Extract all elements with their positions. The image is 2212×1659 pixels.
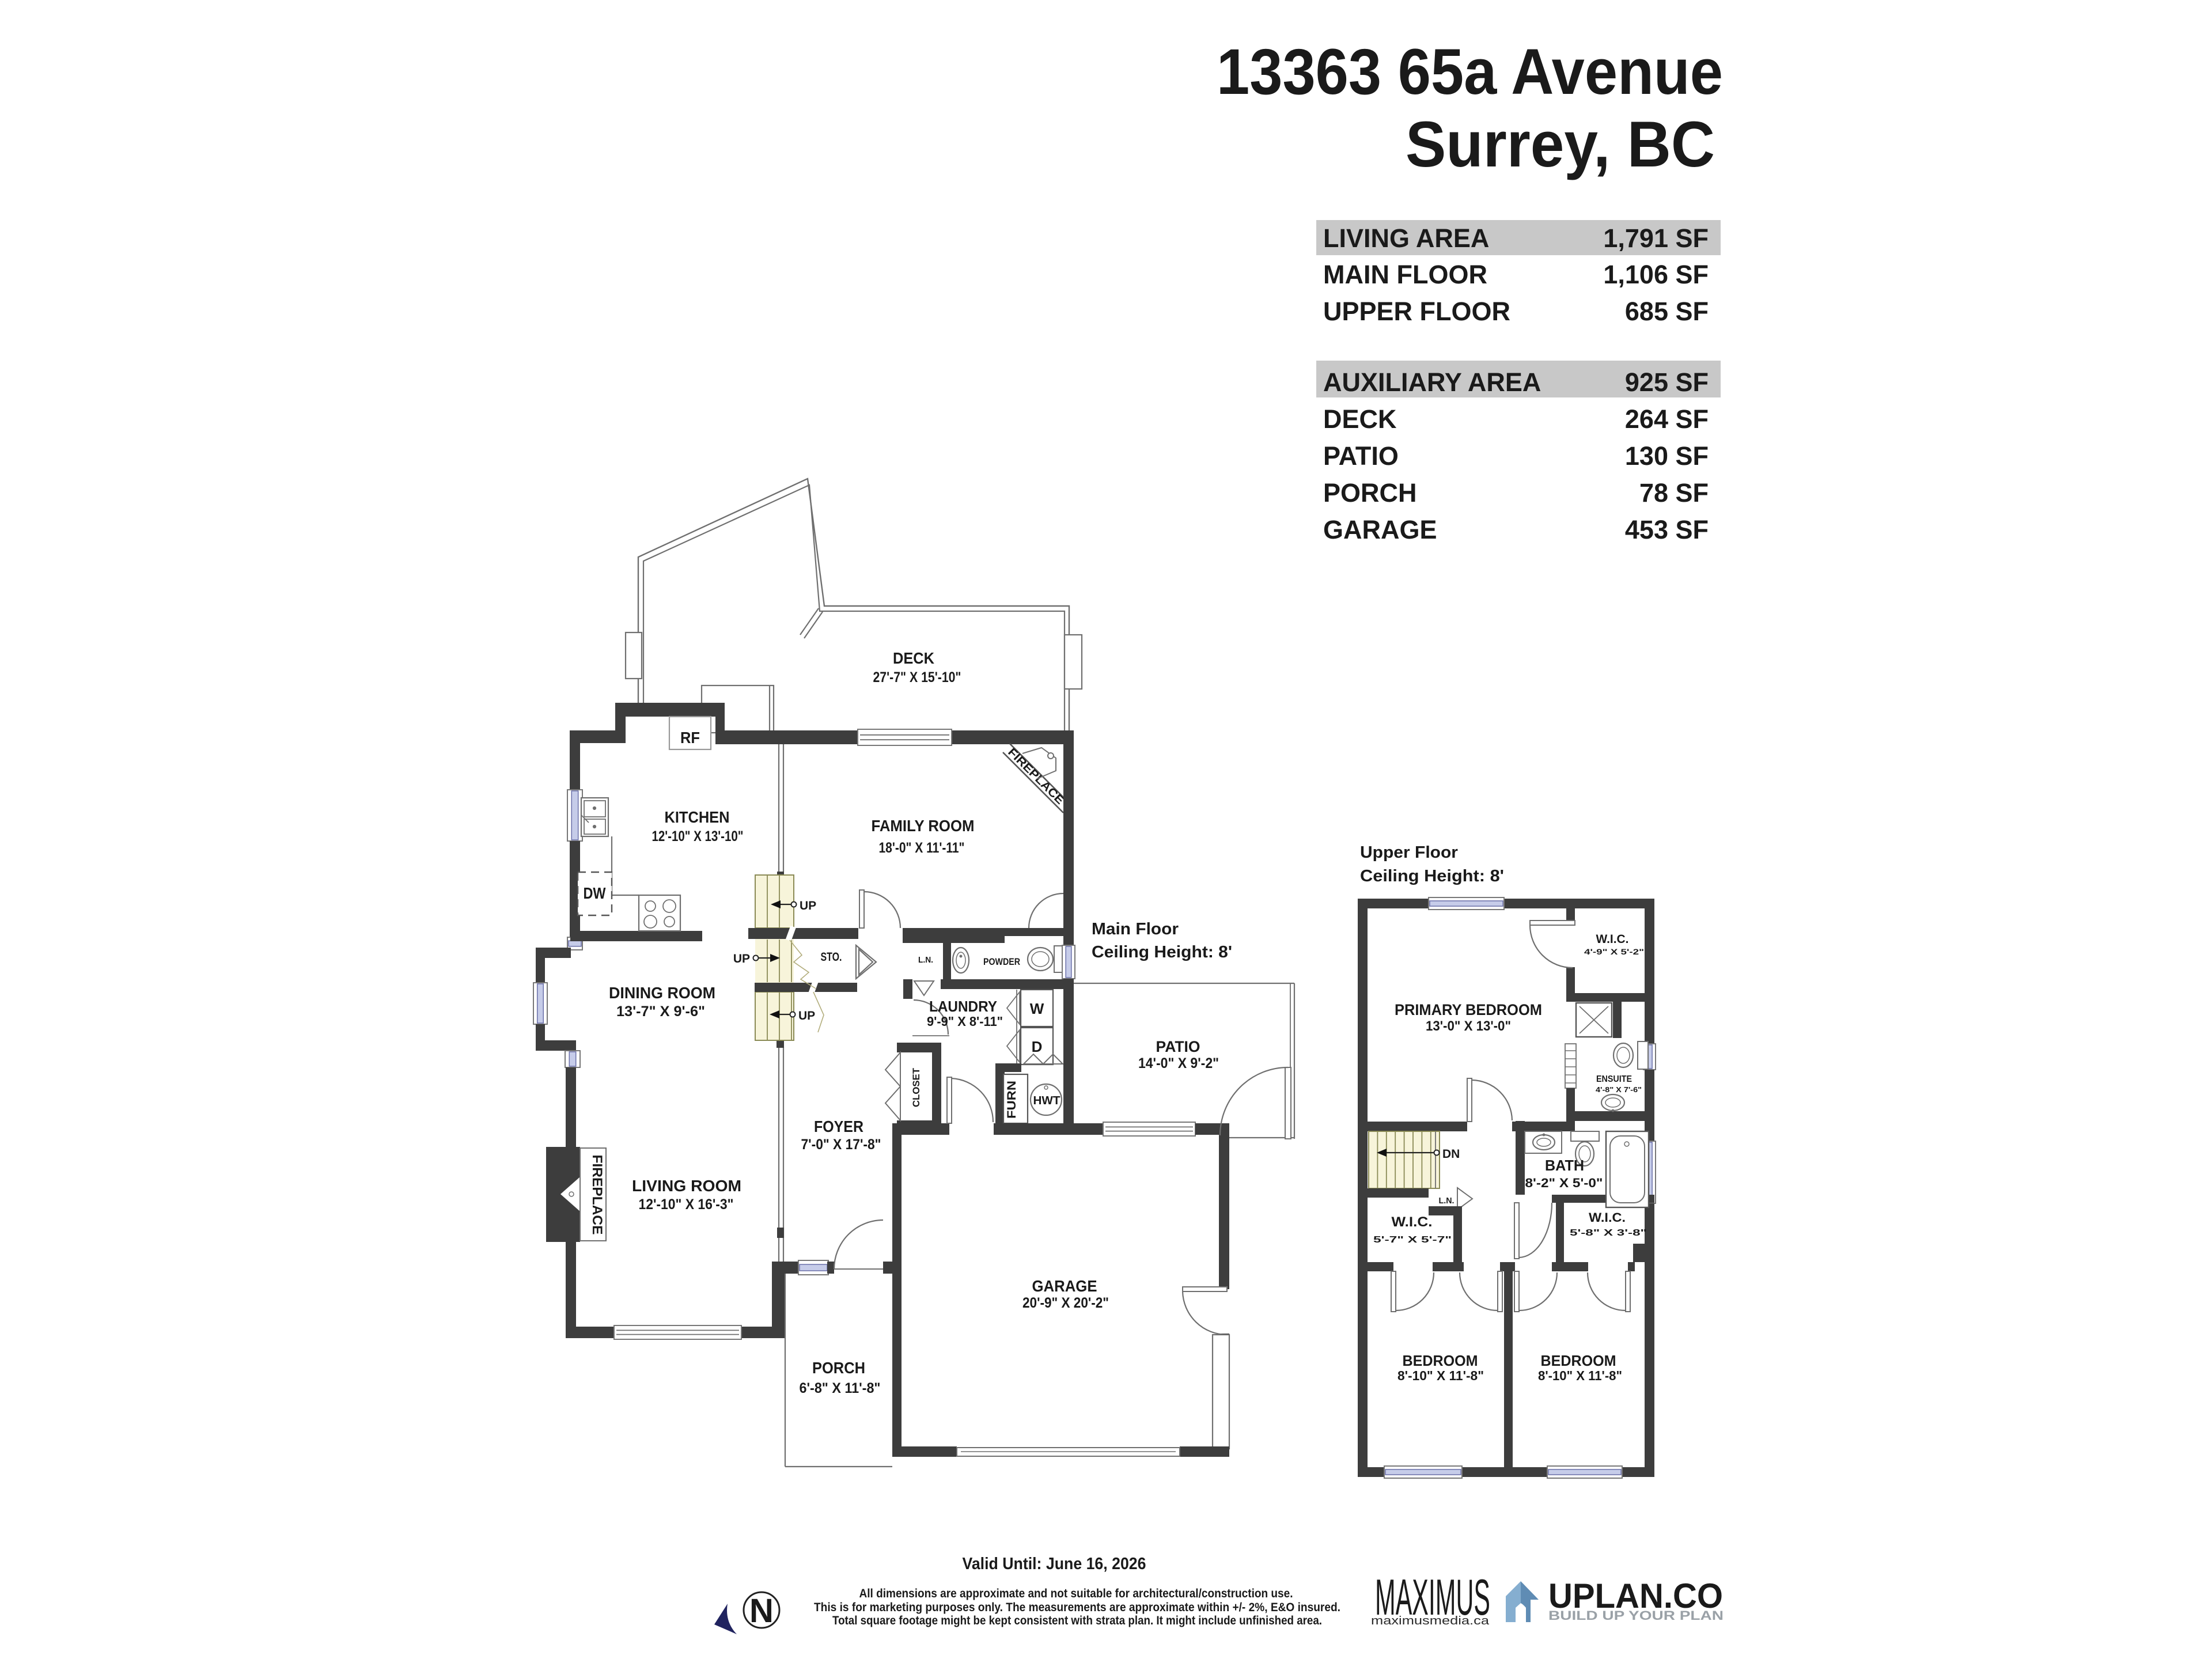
svg-text:20'-9" X 20'-2": 20'-9" X 20'-2" [1022,1295,1109,1311]
svg-text:AUXILIARY AREA: AUXILIARY AREA [1323,368,1541,397]
svg-text:LIVING AREA: LIVING AREA [1323,224,1489,253]
svg-text:Valid Until: June 16, 2026: Valid Until: June 16, 2026 [963,1555,1146,1573]
svg-text:W: W [1030,1000,1044,1017]
svg-text:BATH: BATH [1545,1157,1584,1174]
svg-text:maximusmedia.ca: maximusmedia.ca [1371,1615,1490,1627]
svg-text:FURN: FURN [1005,1081,1018,1119]
svg-text:BEDROOM: BEDROOM [1541,1352,1616,1369]
svg-text:DECK: DECK [1323,404,1397,434]
svg-text:BUILD UP YOUR PLAN: BUILD UP YOUR PLAN [1548,1608,1724,1623]
svg-text:4'-9" X 5'-2": 4'-9" X 5'-2" [1584,947,1644,956]
svg-text:L.N.: L.N. [1439,1196,1455,1206]
svg-text:8'-2" X 5'-0": 8'-2" X 5'-0" [1525,1176,1603,1190]
svg-text:12'-10" X 13'-10": 12'-10" X 13'-10" [652,828,744,844]
svg-text:DINING ROOM: DINING ROOM [609,984,715,1002]
svg-text:PORCH: PORCH [1323,478,1417,507]
svg-text:FOYER: FOYER [814,1118,863,1135]
svg-text:This is for marketing purposes: This is for marketing purposes only. The… [814,1600,1340,1614]
svg-text:Main Floor: Main Floor [1092,920,1179,938]
svg-text:7'-0" X 17'-8": 7'-0" X 17'-8" [801,1137,881,1153]
svg-text:POWDER: POWDER [983,956,1020,967]
svg-text:PATIO: PATIO [1323,441,1399,471]
svg-text:18'-0" X 11'-11": 18'-0" X 11'-11" [879,840,965,856]
svg-text:6'-8" X 11'-8": 6'-8" X 11'-8" [800,1380,881,1396]
svg-text:LAUNDRY: LAUNDRY [929,998,997,1015]
svg-text:130 SF: 130 SF [1625,441,1709,471]
svg-text:DW: DW [584,884,606,902]
svg-text:1,791 SF: 1,791 SF [1603,224,1709,253]
svg-text:DECK: DECK [893,649,934,667]
svg-text:ENSUITE: ENSUITE [1596,1074,1632,1084]
svg-text:13363 65a Avenue: 13363 65a Avenue [1217,36,1723,108]
svg-text:PATIO: PATIO [1156,1038,1200,1055]
svg-text:453 SF: 453 SF [1625,515,1709,544]
svg-text:GARAGE: GARAGE [1032,1277,1097,1295]
svg-text:MAIN FLOOR: MAIN FLOOR [1323,260,1487,289]
svg-text:8'-10" X 11'-8": 8'-10" X 11'-8" [1538,1368,1622,1383]
svg-text:Total square footage might be: Total square footage might be kept consi… [832,1613,1322,1627]
svg-text:Upper Floor: Upper Floor [1360,843,1458,862]
svg-text:RF: RF [680,729,700,747]
svg-text:Ceiling Height: 8': Ceiling Height: 8' [1092,943,1232,961]
svg-text:UP: UP [733,952,750,965]
svg-text:264 SF: 264 SF [1625,404,1709,434]
svg-text:L.N.: L.N. [918,955,933,965]
svg-text:UP: UP [798,1009,815,1022]
svg-text:9'-9" X 8'-11": 9'-9" X 8'-11" [927,1014,1003,1029]
svg-text:BEDROOM: BEDROOM [1403,1352,1478,1369]
svg-text:DN: DN [1442,1147,1460,1161]
svg-text:W.I.C.: W.I.C. [1589,1210,1626,1225]
svg-text:UP: UP [800,899,816,912]
svg-text:14'-0" X 9'-2": 14'-0" X 9'-2" [1138,1055,1219,1071]
svg-text:N: N [749,1592,774,1630]
svg-text:D: D [1032,1038,1043,1055]
svg-text:CLOSET: CLOSET [911,1067,922,1107]
svg-text:5'-7" X 5'-7": 5'-7" X 5'-7" [1373,1235,1452,1245]
svg-text:FIREPLACE: FIREPLACE [589,1155,605,1235]
svg-text:8'-10" X 11'-8": 8'-10" X 11'-8" [1397,1368,1484,1383]
svg-text:78 SF: 78 SF [1639,478,1709,507]
svg-text:KITCHEN: KITCHEN [665,808,730,826]
svg-text:PRIMARY BEDROOM: PRIMARY BEDROOM [1395,1001,1542,1018]
svg-text:PORCH: PORCH [812,1359,865,1377]
svg-text:HWT: HWT [1033,1094,1060,1107]
svg-text:925 SF: 925 SF [1625,368,1709,397]
svg-text:13'-7" X 9'-6": 13'-7" X 9'-6" [616,1003,705,1020]
svg-text:5'-8" X 3'-8": 5'-8" X 3'-8" [1570,1228,1647,1238]
svg-text:13'-0" X 13'-0": 13'-0" X 13'-0" [1426,1018,1511,1034]
svg-text:STO.: STO. [821,950,842,964]
svg-text:FAMILY ROOM: FAMILY ROOM [872,817,975,835]
svg-text:1,106 SF: 1,106 SF [1603,260,1709,289]
svg-text:4'-8" X 7'-6": 4'-8" X 7'-6" [1596,1085,1642,1094]
svg-text:Surrey, BC: Surrey, BC [1406,108,1715,180]
svg-text:685 SF: 685 SF [1625,297,1709,326]
svg-text:W.I.C.: W.I.C. [1392,1214,1433,1230]
svg-text:12'-10" X 16'-3": 12'-10" X 16'-3" [639,1196,734,1213]
svg-text:27'-7" X 15'-10": 27'-7" X 15'-10" [873,669,961,685]
svg-text:GARAGE: GARAGE [1323,515,1437,544]
svg-text:UPPER FLOOR: UPPER FLOOR [1323,297,1510,326]
svg-text:Ceiling Height: 8': Ceiling Height: 8' [1360,867,1504,885]
svg-text:All dimensions are approximate: All dimensions are approximate and not s… [859,1586,1293,1600]
svg-text:LIVING ROOM: LIVING ROOM [632,1177,741,1195]
svg-text:W.I.C.: W.I.C. [1596,933,1629,946]
